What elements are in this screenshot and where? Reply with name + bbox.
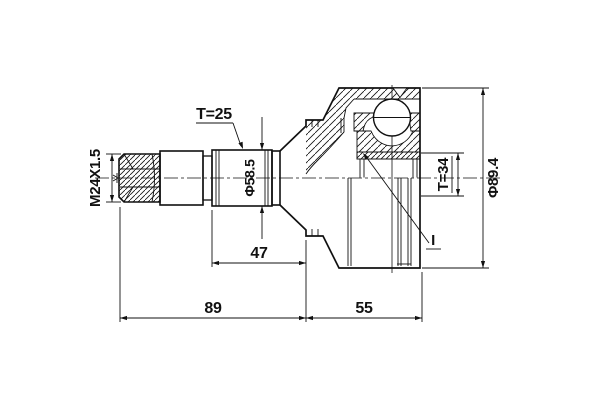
body-diameter-label: Φ89.4 — [485, 157, 502, 198]
thread-outline — [119, 154, 160, 202]
thread-spec-label: M24X1.5 — [87, 149, 104, 207]
threaded-stub — [113, 154, 160, 202]
cage-left-section — [354, 113, 374, 131]
race-bore-edges — [360, 159, 417, 178]
outer-spline-teeth-label: T=25 — [196, 106, 232, 123]
arrowheads — [110, 88, 485, 320]
lower-half-edges — [348, 178, 411, 266]
inner-spline-teeth-label: T=34 — [435, 157, 452, 191]
dim-89-55 — [120, 207, 422, 322]
cv-joint-drawing: M24X1.5 T=25 Φ58.5 47 89 55 T=34 Φ89.4 I — [0, 0, 600, 400]
dim-spline-teeth — [196, 123, 241, 146]
dim-47 — [212, 210, 306, 322]
length-89-label: 89 — [204, 300, 222, 317]
length-55-label: 55 — [355, 300, 373, 317]
technical-drawing-canvas: M24X1.5 T=25 Φ58.5 47 89 55 T=34 Φ89.4 I — [0, 0, 600, 400]
dim-detail-leader — [365, 155, 442, 250]
detail-mark-label: I — [431, 232, 435, 249]
bell-top-wall-hatch — [354, 88, 420, 99]
outer-spline-diameter-label: Φ58.5 — [242, 159, 258, 197]
bell-back-wall-hatch — [306, 88, 354, 174]
length-47-label: 47 — [250, 245, 268, 262]
cage-right-section — [410, 113, 420, 131]
